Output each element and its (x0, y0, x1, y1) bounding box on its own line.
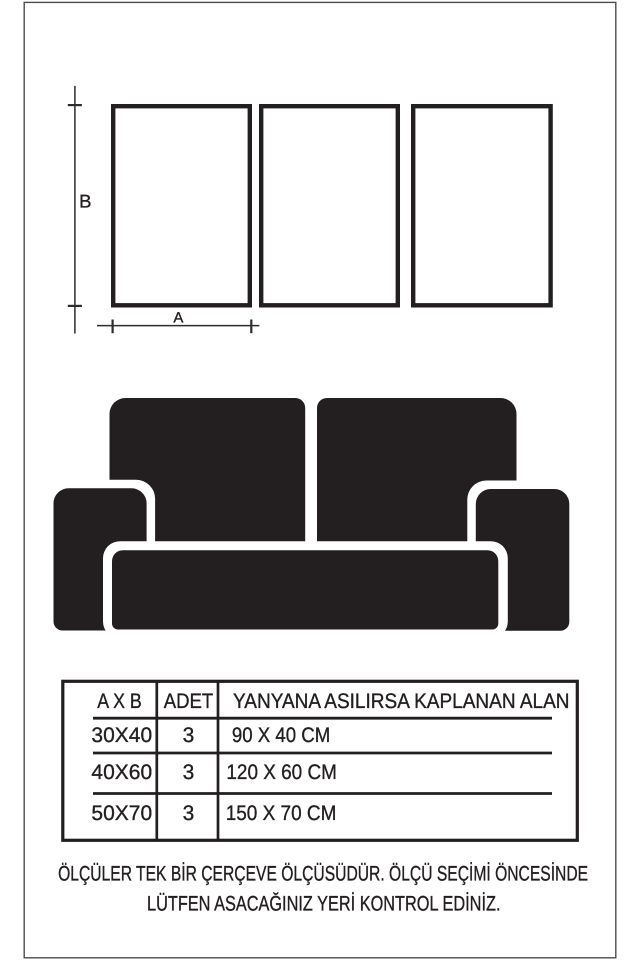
svg-text:90 X 40 CM: 90 X 40 CM (232, 724, 330, 747)
svg-text:A: A (173, 310, 183, 327)
svg-text:40X60: 40X60 (91, 761, 152, 784)
svg-text:120 X 60 CM: 120 X 60 CM (226, 761, 337, 784)
svg-text:3: 3 (183, 724, 195, 747)
svg-text:30X40: 30X40 (91, 724, 152, 747)
svg-text:ADET: ADET (164, 690, 214, 713)
svg-text:ÖLÇÜLER TEK BİR ÇERÇEVE ÖLÇÜSÜ: ÖLÇÜLER TEK BİR ÇERÇEVE ÖLÇÜSÜDÜR. ÖLÇÜ … (58, 862, 588, 886)
svg-text:50X70: 50X70 (91, 802, 152, 825)
svg-text:A X B: A X B (97, 690, 142, 713)
svg-text:150 X 70 CM: 150 X 70 CM (226, 802, 337, 825)
svg-text:YANYANA ASILIRSA KAPLANAN ALAN: YANYANA ASILIRSA KAPLANAN ALAN (233, 690, 570, 713)
svg-text:LÜTFEN ASACAĞINIZ YERİ KONTROL: LÜTFEN ASACAĞINIZ YERİ KONTROL EDİNİZ. (147, 892, 501, 916)
svg-text:3: 3 (183, 761, 195, 784)
svg-text:B: B (79, 190, 91, 211)
svg-text:3: 3 (183, 802, 195, 825)
